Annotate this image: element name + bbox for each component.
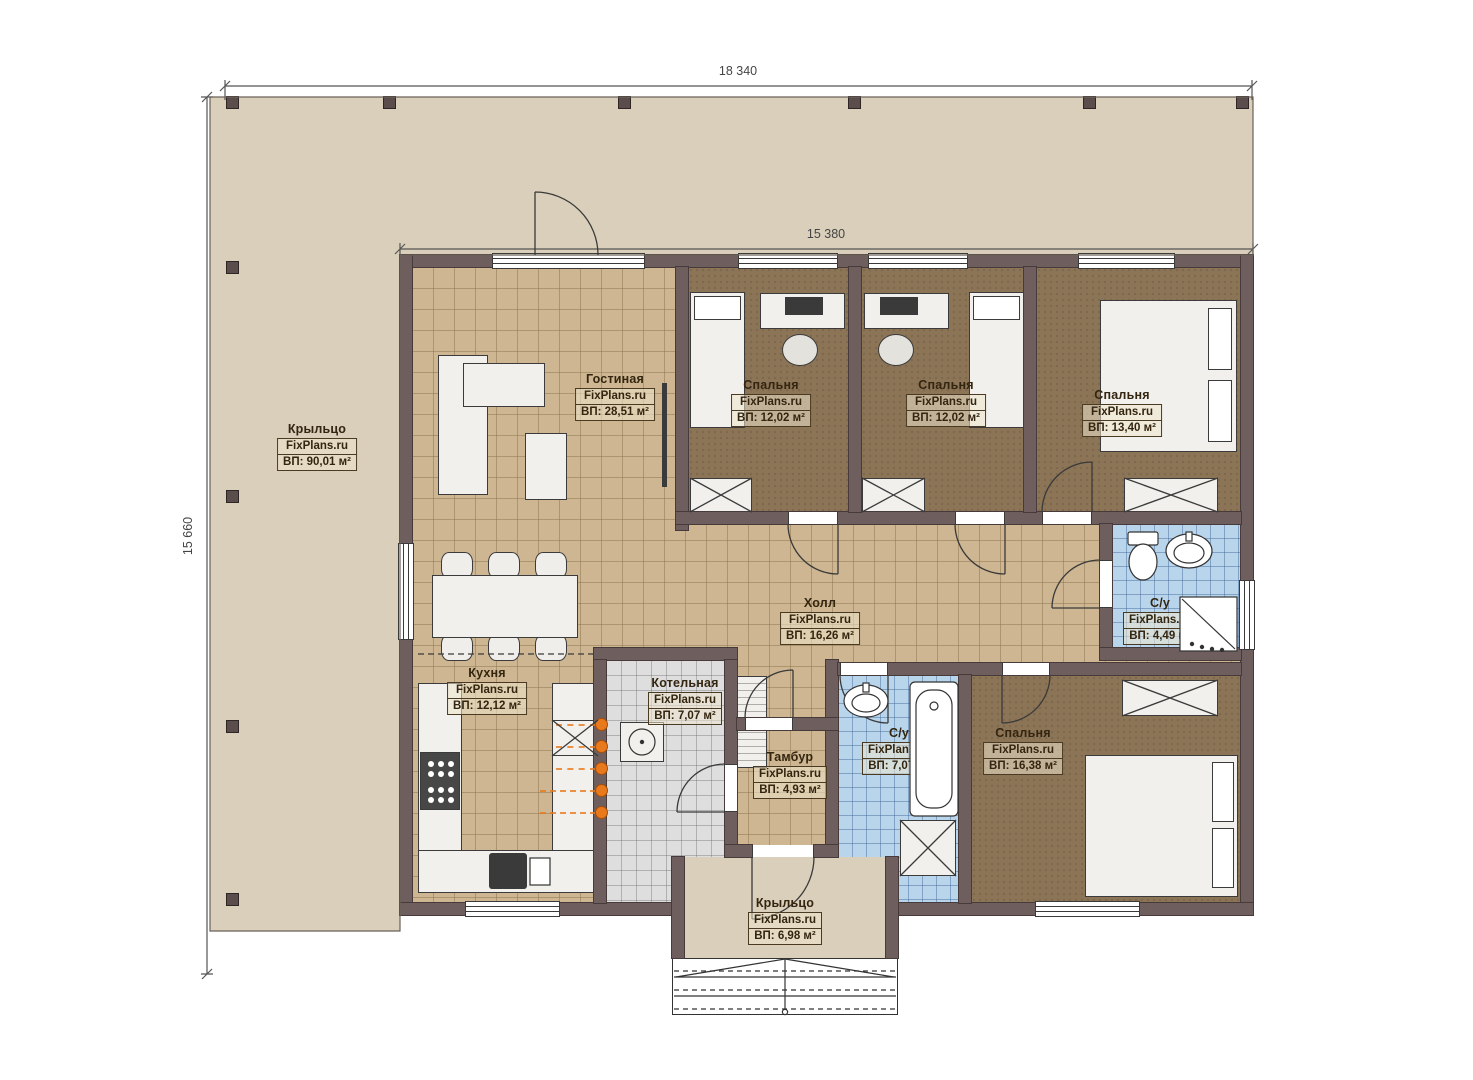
watermark: FixPlans.ru xyxy=(748,912,822,929)
window xyxy=(1035,901,1140,917)
utility-marker xyxy=(595,740,608,753)
pillow xyxy=(1212,828,1234,888)
wall xyxy=(814,845,838,857)
room-name: Спальня xyxy=(983,726,1063,740)
room-label-bedroom-3: Спальня FixPlans.ru ВП: 13,40 м² xyxy=(1082,388,1162,437)
room-label-porch-left: Крыльцо FixPlans.ru ВП: 90,01 м² xyxy=(277,422,357,471)
coffee-table xyxy=(525,433,567,500)
room-name: С/у xyxy=(1123,596,1197,610)
wall xyxy=(594,660,606,903)
room-name: Холл xyxy=(780,596,860,610)
utility-marker xyxy=(595,718,608,731)
porch-post xyxy=(1236,96,1249,109)
room-name: Спальня xyxy=(731,378,811,392)
wardrobe xyxy=(1124,478,1218,512)
sofa xyxy=(463,363,545,407)
room-area: ВП: 12,02 м² xyxy=(731,410,811,427)
watermark: FixPlans.ru xyxy=(780,612,860,629)
room-area: ВП: 16,38 м² xyxy=(983,758,1063,775)
shower-tray xyxy=(900,820,956,876)
wall xyxy=(826,660,838,857)
door-opening xyxy=(1100,560,1112,608)
porch-wall xyxy=(886,857,898,958)
room-area: ВП: 13,40 м² xyxy=(1082,420,1162,437)
utility-line xyxy=(540,812,596,814)
room-label-hall: Холл FixPlans.ru ВП: 16,26 м² xyxy=(780,596,860,645)
porch-left-surface xyxy=(210,97,400,931)
room-area: ВП: 4,93 м² xyxy=(753,782,827,799)
room-area: ВП: 28,51 м² xyxy=(575,404,655,421)
window xyxy=(1078,253,1175,269)
dimension-overall-width: 18 340 xyxy=(719,64,757,78)
dining-table xyxy=(432,575,578,638)
wall xyxy=(725,660,737,857)
room-name: Гостиная xyxy=(575,372,655,386)
floor-plan: Крыльцо FixPlans.ru ВП: 90,01 м² Гостина… xyxy=(0,0,1473,1080)
utility-line xyxy=(540,790,596,792)
dimension-overall-height: 15 660 xyxy=(181,517,195,555)
room-name: Крыльцо xyxy=(748,896,822,910)
room-label-bedroom-2: Спальня FixPlans.ru ВП: 12,02 м² xyxy=(906,378,986,427)
watermark: FixPlans.ru xyxy=(648,692,722,709)
room-name: Спальня xyxy=(906,378,986,392)
window xyxy=(398,543,414,640)
utility-marker xyxy=(595,762,608,775)
kitchen-counter xyxy=(418,850,598,893)
window xyxy=(492,253,645,269)
door-opening xyxy=(745,718,793,730)
room-name: Котельная xyxy=(648,676,722,690)
office-chair xyxy=(878,334,914,366)
pillow xyxy=(1208,380,1232,442)
dining-chair xyxy=(488,634,520,661)
tv xyxy=(662,383,667,487)
monitor xyxy=(880,297,918,315)
boiler-unit xyxy=(620,722,664,762)
utility-marker xyxy=(595,806,608,819)
window xyxy=(1239,580,1255,650)
door-opening xyxy=(1042,512,1092,524)
dining-chair xyxy=(441,634,473,661)
wall xyxy=(594,648,737,660)
monitor xyxy=(785,297,823,315)
room-label-boiler-room: Котельная FixPlans.ru ВП: 7,07 м² xyxy=(648,676,722,725)
pillow xyxy=(973,296,1020,320)
porch-post xyxy=(226,720,239,733)
door-opening xyxy=(1002,663,1050,675)
window xyxy=(868,253,968,269)
wall xyxy=(849,267,861,512)
window xyxy=(465,901,560,917)
room-name: Спальня xyxy=(1082,388,1162,402)
watermark: FixPlans.ru xyxy=(1082,404,1162,421)
room-label-vestibule: Тамбур FixPlans.ru ВП: 4,93 м² xyxy=(753,750,827,799)
door-opening xyxy=(788,512,838,524)
utility-line xyxy=(556,746,596,748)
room-name: Тамбур xyxy=(753,750,827,764)
stove xyxy=(420,752,460,810)
room-area: ВП: 4,49 м² xyxy=(1123,628,1197,645)
door-opening xyxy=(752,845,814,857)
watermark: FixPlans.ru xyxy=(277,438,357,455)
room-label-bedroom-4: Спальня FixPlans.ru ВП: 16,38 м² xyxy=(983,726,1063,775)
porch-steps xyxy=(672,958,898,1015)
wall xyxy=(725,845,752,857)
wall xyxy=(959,675,971,903)
wardrobe xyxy=(690,478,752,512)
room-area: ВП: 6,98 м² xyxy=(748,928,822,945)
room-label-bedroom-1: Спальня FixPlans.ru ВП: 12,02 м² xyxy=(731,378,811,427)
room-name: С/у xyxy=(862,726,936,740)
room-name: Кухня xyxy=(447,666,527,680)
porch-wall xyxy=(672,857,684,958)
room-name: Крыльцо xyxy=(277,422,357,436)
room-area: ВП: 90,01 м² xyxy=(277,454,357,471)
porch-post xyxy=(226,490,239,503)
room-area: ВП: 7,07 м² xyxy=(862,758,936,775)
room-area: ВП: 16,26 м² xyxy=(780,628,860,645)
room-label-living-room: Гостиная FixPlans.ru ВП: 28,51 м² xyxy=(575,372,655,421)
watermark: FixPlans.ru xyxy=(753,766,827,783)
wall xyxy=(1024,267,1036,512)
watermark: FixPlans.ru xyxy=(447,682,527,699)
utility-line xyxy=(556,724,596,726)
dining-chair xyxy=(535,634,567,661)
room-area: ВП: 7,07 м² xyxy=(648,708,722,725)
room-label-bathroom-bottom: С/у FixPlans.ru ВП: 7,07 м² xyxy=(862,726,936,775)
porch-post xyxy=(848,96,861,109)
porch-post xyxy=(226,96,239,109)
dimension-house-width: 15 380 xyxy=(807,227,845,241)
porch-post xyxy=(383,96,396,109)
watermark: FixPlans.ru xyxy=(731,394,811,411)
door-opening xyxy=(725,764,737,812)
porch-post xyxy=(1083,96,1096,109)
porch-post xyxy=(226,893,239,906)
room-area: ВП: 12,02 м² xyxy=(906,410,986,427)
pillow xyxy=(1208,308,1232,370)
wall xyxy=(1100,648,1241,660)
utility-marker xyxy=(595,784,608,797)
pillow xyxy=(1212,762,1234,822)
wardrobe xyxy=(1122,680,1218,716)
wall xyxy=(676,267,688,530)
wardrobe xyxy=(862,478,925,512)
watermark: FixPlans.ru xyxy=(1123,612,1197,629)
office-chair xyxy=(782,334,818,366)
porch-post xyxy=(618,96,631,109)
room-label-kitchen: Кухня FixPlans.ru ВП: 12,12 м² xyxy=(447,666,527,715)
door-opening xyxy=(955,512,1005,524)
window xyxy=(738,253,838,269)
utility-line xyxy=(556,768,596,770)
door-opening xyxy=(840,663,888,675)
watermark: FixPlans.ru xyxy=(983,742,1063,759)
watermark: FixPlans.ru xyxy=(575,388,655,405)
porch-post xyxy=(226,261,239,274)
watermark: FixPlans.ru xyxy=(906,394,986,411)
room-area: ВП: 12,12 м² xyxy=(447,698,527,715)
pillow xyxy=(694,296,741,320)
room-label-bathroom-top: С/у FixPlans.ru ВП: 4,49 м² xyxy=(1123,596,1197,645)
watermark: FixPlans.ru xyxy=(862,742,936,759)
room-label-porch-bottom: Крыльцо FixPlans.ru ВП: 6,98 м² xyxy=(748,896,822,945)
